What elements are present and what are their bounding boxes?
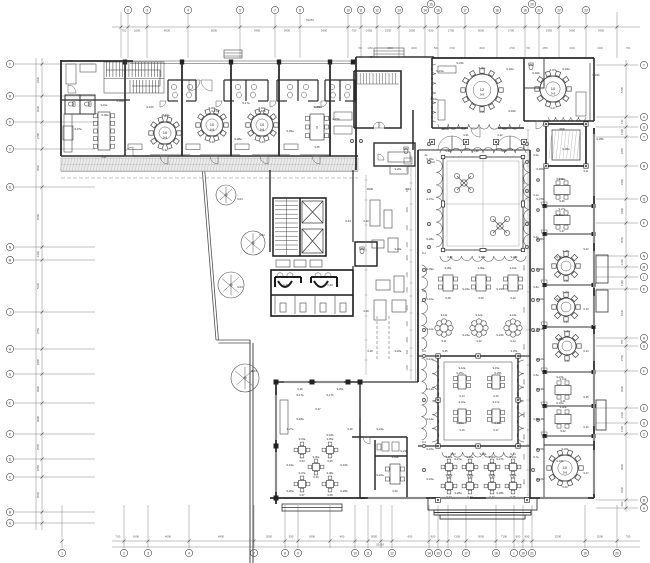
svg-text:1100: 1100 [620, 426, 624, 432]
svg-text:350: 350 [289, 535, 294, 539]
svg-text:500: 500 [434, 47, 439, 50]
svg-text:3600: 3600 [523, 479, 526, 485]
svg-text:800: 800 [525, 535, 530, 539]
svg-text:9-08a: 9-08a [234, 137, 242, 141]
svg-text:3600: 3600 [523, 412, 526, 418]
svg-text:9-30a: 9-30a [556, 255, 564, 259]
svg-text:13: 13 [397, 8, 401, 12]
svg-text:9-01b: 9-01b [456, 61, 464, 65]
svg-text:9-10b: 9-10b [511, 255, 518, 259]
svg-text:7100: 7100 [501, 535, 508, 539]
svg-text:18: 18 [494, 551, 498, 555]
svg-text:2700: 2700 [449, 47, 455, 50]
svg-text:21: 21 [537, 8, 541, 12]
svg-text:9-24b: 9-24b [496, 333, 504, 337]
svg-text:9-23a: 9-23a [462, 287, 470, 291]
svg-text:9-13b: 9-13b [536, 387, 544, 391]
svg-text:3500: 3500 [36, 491, 40, 498]
svg-text:9-05a: 9-05a [327, 437, 334, 441]
svg-text:9-0: 9-0 [431, 160, 435, 164]
svg-text:9-14: 9-14 [459, 394, 465, 398]
svg-text:3300: 3300 [406, 255, 409, 261]
svg-text:4000: 4000 [165, 535, 172, 539]
svg-text:9-02a: 9-02a [506, 67, 514, 71]
svg-text:F: F [643, 369, 645, 373]
svg-text:3800: 3800 [36, 164, 40, 171]
svg-text:2700: 2700 [620, 354, 624, 361]
svg-text:6: 6 [316, 126, 318, 130]
svg-text:9-07: 9-07 [550, 106, 556, 110]
svg-text:1180: 1180 [620, 280, 624, 286]
svg-text:9-04a: 9-04a [299, 437, 306, 441]
svg-text:9-19a: 9-19a [467, 455, 474, 459]
svg-text:4: 4 [187, 8, 189, 12]
svg-text:9-09: 9-09 [478, 296, 484, 300]
svg-text:2: 2 [123, 551, 125, 555]
svg-text:9-25a: 9-25a [510, 473, 517, 477]
svg-text:5200: 5200 [555, 535, 562, 539]
svg-text:9-03: 9-03 [237, 285, 243, 289]
svg-text:9-05a: 9-05a [116, 99, 124, 103]
svg-text:760: 760 [626, 47, 631, 50]
svg-text:1600: 1600 [134, 29, 141, 33]
svg-text:9-27b: 9-27b [496, 457, 504, 461]
svg-text:9-8: 9-8 [260, 128, 265, 132]
svg-text:2400: 2400 [523, 307, 526, 313]
svg-text:9-08: 9-08 [327, 493, 333, 497]
svg-text:9-26b: 9-26b [494, 421, 502, 425]
svg-text:700: 700 [352, 29, 357, 33]
svg-text:9-20a: 9-20a [395, 167, 402, 171]
svg-text:9-29: 9-29 [563, 320, 569, 324]
svg-text:2330: 2330 [387, 47, 393, 50]
svg-text:9-04: 9-04 [259, 140, 265, 144]
svg-text:9-01a: 9-01a [101, 103, 108, 107]
svg-text:1400: 1400 [620, 128, 624, 135]
svg-text:9-16b: 9-16b [146, 105, 154, 109]
svg-text:9-26: 9-26 [297, 387, 303, 391]
svg-text:10: 10 [260, 122, 265, 127]
svg-text:2350: 2350 [542, 47, 548, 50]
svg-text:9-20a: 9-20a [286, 489, 294, 493]
svg-text:2550: 2550 [36, 443, 40, 450]
svg-text:500: 500 [429, 29, 434, 33]
svg-text:9-02: 9-02 [162, 148, 168, 152]
svg-text:9-12a: 9-12a [426, 357, 434, 361]
svg-text:9-08a: 9-08a [445, 266, 452, 270]
svg-text:T: T [643, 135, 645, 139]
svg-text:9-24: 9-24 [510, 452, 516, 456]
svg-text:9-25a: 9-25a [456, 371, 464, 375]
svg-text:9-17a: 9-17a [493, 400, 500, 404]
svg-text:52050: 52050 [376, 543, 384, 547]
svg-text:740: 740 [620, 119, 624, 124]
svg-text:1800: 1800 [309, 535, 316, 539]
svg-text:19: 19 [523, 8, 527, 12]
svg-text:2: 2 [127, 8, 129, 12]
svg-text:3080: 3080 [36, 415, 40, 422]
svg-text:9-7a: 9-7a [533, 455, 539, 459]
svg-text:9-13: 9-13 [510, 339, 516, 343]
svg-text:9-27: 9-27 [559, 229, 565, 233]
svg-text:750: 750 [620, 339, 624, 344]
svg-text:900: 900 [516, 535, 521, 539]
svg-text:9-22: 9-22 [497, 133, 503, 137]
svg-text:2350: 2350 [546, 29, 553, 33]
svg-text:9-08a: 9-08a [426, 237, 434, 241]
svg-text:9-09a: 9-09a [286, 129, 294, 133]
svg-text:9-05a: 9-05a [562, 147, 570, 151]
svg-text:9-06b: 9-06b [536, 167, 544, 171]
svg-text:800: 800 [431, 535, 436, 539]
svg-text:16: 16 [436, 8, 440, 12]
svg-text:700: 700 [358, 47, 363, 50]
svg-text:2480: 2480 [36, 358, 40, 365]
svg-text:9-8: 9-8 [163, 136, 168, 140]
svg-text:9-28a: 9-28a [454, 491, 462, 495]
svg-text:9-28a: 9-28a [563, 249, 570, 253]
svg-text:9-25a: 9-25a [511, 349, 518, 353]
svg-text:9-36: 9-36 [327, 283, 333, 287]
svg-text:2400: 2400 [523, 454, 526, 460]
svg-text:14: 14 [427, 551, 431, 555]
svg-text:1200: 1200 [406, 272, 409, 278]
svg-text:9-20b: 9-20b [340, 489, 348, 493]
svg-text:16: 16 [436, 551, 440, 555]
svg-text:I: I [448, 551, 449, 555]
svg-text:9-00a: 9-00a [564, 329, 571, 333]
svg-text:9-05: 9-05 [314, 145, 320, 149]
svg-text:1: 1 [61, 551, 63, 555]
svg-text:9-19b: 9-19b [340, 463, 348, 467]
svg-text:9-21: 9-21 [463, 133, 469, 137]
svg-text:9-04a: 9-04a [430, 97, 438, 101]
svg-text:700: 700 [122, 29, 127, 33]
svg-text:9-07a: 9-07a [426, 197, 434, 201]
svg-text:3000: 3000 [479, 47, 485, 50]
svg-text:20: 20 [615, 551, 619, 555]
svg-text:9-15: 9-15 [583, 395, 589, 399]
svg-text:9-13a: 9-13a [426, 387, 434, 391]
svg-text:9-07b: 9-07b [536, 197, 544, 201]
svg-text:9-29a: 9-29a [563, 290, 570, 294]
svg-text:1300: 1300 [36, 250, 40, 257]
svg-text:9-2a: 9-2a [533, 235, 539, 239]
svg-text:9-09a: 9-09a [478, 266, 485, 270]
svg-text:9-01a: 9-01a [560, 377, 567, 381]
svg-text:9-20: 9-20 [363, 219, 369, 223]
svg-text:9-18b: 9-18b [326, 433, 334, 437]
svg-text:9-28: 9-28 [563, 279, 569, 283]
svg-text:9-02: 9-02 [259, 233, 265, 237]
svg-text:9-1: 9-1 [422, 251, 426, 255]
svg-text:9-1a: 9-1a [533, 193, 539, 197]
svg-text:9-17b: 9-17b [326, 393, 334, 397]
svg-text:1450: 1450 [366, 29, 373, 33]
svg-text:9-31a: 9-31a [556, 337, 564, 341]
svg-text:2700: 2700 [508, 29, 515, 33]
svg-text:9-17: 9-17 [583, 471, 589, 475]
svg-text:9-10b: 9-10b [536, 297, 544, 301]
svg-text:10: 10 [353, 551, 357, 555]
svg-text:9-25b: 9-25b [494, 371, 502, 375]
svg-text:1200: 1200 [406, 365, 409, 371]
svg-text:M: M [9, 258, 12, 262]
svg-text:9-13a: 9-13a [510, 313, 517, 317]
svg-text:9-13: 9-13 [583, 307, 589, 311]
svg-text:4430: 4430 [620, 486, 624, 493]
svg-text:9-03: 9-03 [209, 140, 215, 144]
svg-text:1600: 1600 [133, 535, 140, 539]
svg-text:9-29b: 9-29b [556, 213, 564, 217]
svg-text:1450a: 1450a [441, 127, 449, 131]
svg-text:2050: 2050 [266, 535, 273, 539]
svg-text:9-05a: 9-05a [314, 105, 321, 109]
svg-text:9-23b: 9-23b [496, 287, 504, 291]
svg-text:9-08a: 9-08a [327, 471, 334, 475]
svg-text:9-35: 9-35 [283, 283, 289, 287]
svg-text:700: 700 [116, 535, 121, 539]
svg-text:9-5a: 9-5a [533, 373, 539, 377]
svg-text:600: 600 [408, 535, 413, 539]
svg-text:9-3: 9-3 [422, 349, 426, 353]
svg-text:9-03a: 9-03a [209, 106, 216, 110]
svg-text:B: B [643, 498, 645, 502]
svg-text:3: 3 [146, 8, 148, 12]
svg-text:3000: 3000 [523, 379, 526, 385]
svg-text:2000: 2000 [411, 47, 417, 50]
svg-text:9-19a: 9-19a [286, 463, 294, 467]
svg-text:9-02a: 9-02a [560, 405, 567, 409]
svg-text:I: I [514, 551, 515, 555]
svg-text:14: 14 [423, 8, 427, 12]
svg-text:2900: 2900 [36, 385, 40, 392]
svg-text:2630: 2630 [36, 105, 40, 112]
svg-text:3600: 3600 [523, 145, 526, 151]
svg-text:1200: 1200 [406, 321, 409, 327]
svg-text:9-9b: 9-9b [447, 255, 453, 259]
svg-text:9-18a: 9-18a [296, 417, 304, 421]
svg-text:9-18a: 9-18a [395, 349, 402, 353]
svg-text:9-16: 9-16 [459, 428, 465, 432]
svg-text:7100: 7100 [454, 535, 461, 539]
svg-text:9-03a: 9-03a [562, 447, 569, 451]
svg-text:9-4: 9-4 [422, 440, 426, 444]
svg-text:9-08: 9-08 [445, 296, 451, 300]
svg-text:22: 22 [557, 8, 561, 12]
svg-text:1200: 1200 [406, 225, 409, 231]
svg-text:10: 10 [210, 122, 215, 127]
svg-text:12: 12 [480, 87, 485, 92]
svg-text:3400: 3400 [597, 47, 603, 50]
svg-text:9-25: 9-25 [442, 349, 448, 353]
svg-text:2000: 2000 [409, 29, 416, 33]
svg-text:9-17: 9-17 [493, 428, 499, 432]
svg-text:9-06a: 9-06a [313, 455, 320, 459]
svg-text:9-21a: 9-21a [376, 427, 384, 431]
svg-text:5000: 5000 [211, 29, 218, 33]
svg-text:9-27: 9-27 [315, 407, 321, 411]
svg-text:1450: 1450 [367, 47, 373, 50]
svg-text:9-30b: 9-30b [556, 297, 564, 301]
svg-text:9-05: 9-05 [327, 459, 333, 463]
svg-text:3000: 3000 [478, 535, 485, 539]
svg-text:4000: 4000 [164, 29, 171, 33]
svg-text:9-04a: 9-04a [259, 106, 266, 110]
svg-text:3430: 3430 [36, 76, 40, 83]
svg-text:7: 7 [274, 8, 276, 12]
svg-text:750: 750 [626, 535, 631, 539]
svg-text:S: S [9, 185, 11, 189]
svg-text:3600: 3600 [559, 127, 565, 131]
svg-text:23: 23 [584, 8, 588, 12]
svg-text:9-15: 9-15 [493, 394, 499, 398]
svg-text:6430: 6430 [620, 309, 624, 316]
svg-text:10: 10 [563, 465, 568, 470]
svg-text:9-26a: 9-26a [559, 177, 566, 181]
svg-text:2400: 2400 [284, 29, 291, 33]
svg-text:9-05b: 9-05b [596, 137, 604, 141]
svg-text:F: F [9, 401, 11, 405]
svg-text:9-8b: 9-8b [473, 149, 479, 153]
svg-text:9-07a: 9-07a [550, 68, 557, 72]
svg-text:2130: 2130 [620, 411, 624, 418]
svg-text:9-00: 9-00 [564, 359, 570, 363]
svg-text:9-04: 9-04 [299, 459, 305, 463]
svg-text:L: L [643, 275, 645, 279]
svg-text:9-16b: 9-16b [536, 477, 544, 481]
svg-text:1200: 1200 [406, 242, 409, 248]
svg-text:9-03b: 9-03b [592, 73, 600, 77]
svg-text:12: 12 [375, 8, 379, 12]
svg-text:9-16: 9-16 [583, 425, 589, 429]
svg-text:3300: 3300 [406, 305, 409, 311]
svg-text:9-22a: 9-22a [446, 473, 453, 477]
svg-text:3600: 3600 [523, 265, 526, 271]
svg-text:2330: 2330 [385, 29, 392, 33]
svg-text:9-8: 9-8 [563, 471, 568, 475]
svg-text:5400: 5400 [321, 29, 328, 33]
svg-text:3: 3 [147, 551, 149, 555]
svg-text:3750: 3750 [36, 327, 40, 334]
svg-text:9-12b: 9-12b [536, 357, 544, 361]
svg-text:9-06a: 9-06a [101, 113, 109, 117]
svg-text:21: 21 [530, 551, 534, 555]
svg-text:9-11a: 9-11a [427, 327, 434, 331]
svg-text:9-11a: 9-11a [441, 313, 448, 317]
svg-text:3600: 3600 [523, 434, 526, 440]
svg-text:9-02: 9-02 [560, 429, 566, 433]
svg-text:9-09b: 9-09b [536, 267, 544, 271]
svg-text:1850: 1850 [36, 464, 40, 471]
svg-text:9-0a: 9-0a [533, 153, 539, 157]
svg-text:T: T [9, 147, 11, 151]
svg-text:11: 11 [366, 551, 370, 555]
svg-text:4500: 4500 [367, 187, 374, 191]
svg-text:9-32b: 9-32b [556, 459, 564, 463]
svg-text:11: 11 [359, 8, 363, 12]
svg-text:10: 10 [551, 86, 556, 91]
svg-text:9-03: 9-03 [562, 485, 568, 489]
svg-text:9-12a: 9-12a [476, 313, 483, 317]
svg-text:19: 19 [583, 551, 587, 555]
svg-text:3600: 3600 [620, 463, 624, 470]
svg-text:52050: 52050 [306, 18, 314, 22]
svg-text:9-12: 9-12 [583, 247, 589, 251]
svg-text:9-16a: 9-16a [426, 477, 434, 481]
svg-text:9-24a: 9-24a [489, 473, 496, 477]
svg-text:9-01a: 9-01a [436, 69, 444, 73]
svg-text:9-02b: 9-02b [532, 71, 540, 75]
svg-text:B: B [9, 510, 11, 514]
svg-text:9-26a: 9-26a [337, 387, 344, 391]
svg-text:9-19: 9-19 [363, 309, 369, 313]
svg-text:18: 18 [495, 8, 499, 12]
svg-text:9-11: 9-11 [442, 339, 448, 343]
svg-text:9-8a: 9-8a [445, 149, 451, 153]
svg-text:17: 17 [463, 8, 467, 12]
svg-text:17: 17 [464, 551, 468, 555]
svg-text:9-18: 9-18 [367, 349, 373, 353]
svg-text:9-28b: 9-28b [496, 491, 504, 495]
svg-text:5200: 5200 [597, 535, 604, 539]
svg-text:9-24a: 9-24a [462, 333, 470, 337]
svg-text:12: 12 [390, 551, 394, 555]
svg-text:9-09a: 9-09a [426, 267, 434, 271]
svg-text:9-03a: 9-03a [562, 67, 570, 71]
svg-text:20: 20 [530, 2, 534, 6]
svg-text:5050: 5050 [371, 535, 378, 539]
svg-text:3000: 3000 [478, 29, 485, 33]
svg-text:9-4a: 9-4a [533, 329, 539, 333]
svg-text:9-09: 9-09 [392, 489, 398, 493]
svg-text:9-26: 9-26 [559, 199, 565, 203]
svg-text:3000: 3000 [523, 219, 526, 225]
svg-text:9-14a: 9-14a [459, 366, 466, 370]
svg-text:3000: 3000 [523, 179, 526, 185]
svg-text:9-15b: 9-15b [536, 447, 544, 451]
svg-text:19: 19 [521, 551, 525, 555]
svg-text:2700: 2700 [448, 29, 455, 33]
svg-text:9-8: 9-8 [551, 92, 556, 96]
svg-text:9-06: 9-06 [313, 475, 319, 479]
svg-text:9-22a: 9-22a [376, 473, 384, 477]
svg-text:5780: 5780 [620, 86, 624, 93]
svg-text:9-33: 9-33 [345, 219, 351, 223]
svg-text:9-07b: 9-07b [332, 117, 340, 121]
svg-text:8: 8 [299, 8, 301, 12]
svg-text:9-14: 9-14 [583, 349, 589, 353]
svg-text:9-10a: 9-10a [479, 255, 486, 259]
svg-text:9-06a: 9-06a [479, 66, 486, 70]
svg-text:2400: 2400 [620, 178, 624, 185]
svg-text:5230: 5230 [36, 282, 40, 289]
svg-text:9-15a: 9-15a [426, 447, 434, 451]
svg-text:3000: 3000 [620, 385, 624, 392]
svg-text:1500: 1500 [406, 207, 409, 213]
svg-text:9-01: 9-01 [101, 155, 107, 159]
svg-text:9-26a: 9-26a [456, 421, 464, 425]
svg-text:10: 10 [163, 130, 168, 135]
svg-text:2700: 2700 [406, 287, 409, 293]
svg-text:9-10a: 9-10a [510, 266, 517, 270]
svg-text:9-07a: 9-07a [74, 127, 82, 131]
svg-text:9-23a: 9-23a [467, 473, 474, 477]
svg-text:700: 700 [526, 47, 531, 50]
svg-text:9-01: 9-01 [560, 399, 566, 403]
svg-text:2450: 2450 [620, 147, 624, 154]
svg-text:3300: 3300 [406, 337, 409, 343]
